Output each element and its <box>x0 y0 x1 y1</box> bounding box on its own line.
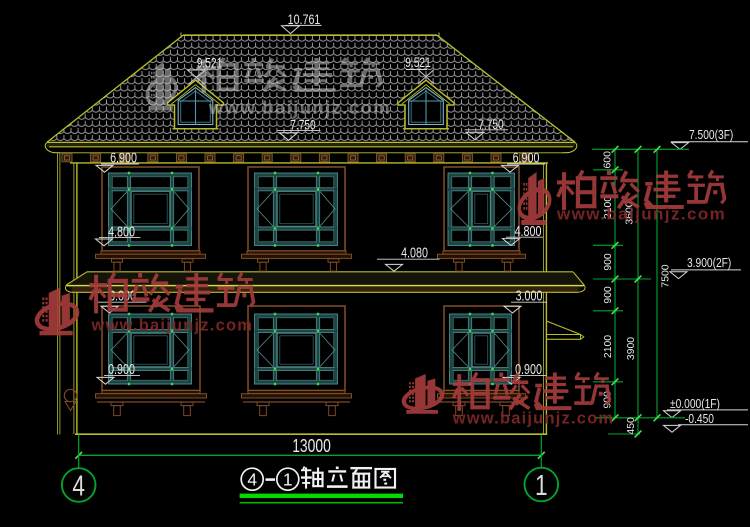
svg-text:4: 4 <box>247 469 257 489</box>
svg-text:www.baijunjz.com: www.baijunjz.com <box>452 410 615 428</box>
svg-text:www.baijunjz.com: www.baijunjz.com <box>556 205 726 224</box>
svg-text:2100: 2100 <box>603 335 614 358</box>
svg-text:6.900: 6.900 <box>110 149 137 166</box>
svg-text:450: 450 <box>626 417 637 435</box>
svg-text:9.521: 9.521 <box>405 55 431 71</box>
svg-text:900: 900 <box>603 286 614 304</box>
svg-text:www.baijunjz.com: www.baijunjz.com <box>91 317 254 335</box>
svg-text:4.080: 4.080 <box>401 244 428 261</box>
svg-text:0.900: 0.900 <box>108 360 135 377</box>
svg-text:7500: 7500 <box>660 264 671 287</box>
svg-text:0.900: 0.900 <box>515 360 542 377</box>
svg-text:600: 600 <box>603 151 614 169</box>
svg-text:3.000: 3.000 <box>516 287 543 304</box>
svg-text:4: 4 <box>72 469 85 502</box>
svg-text:±0.000(1F): ±0.000(1F) <box>670 398 720 411</box>
svg-text:7.500(3F): 7.500(3F) <box>689 129 733 142</box>
svg-text:www.baijunjz.com: www.baijunjz.com <box>208 97 391 118</box>
svg-text:3.900(2F): 3.900(2F) <box>687 257 731 270</box>
svg-text:1: 1 <box>535 468 548 501</box>
svg-text:3900: 3900 <box>626 337 637 360</box>
svg-text:13000: 13000 <box>292 436 331 456</box>
svg-text:900: 900 <box>603 253 614 271</box>
svg-text:6.900: 6.900 <box>513 149 540 166</box>
svg-text:1: 1 <box>283 469 293 489</box>
